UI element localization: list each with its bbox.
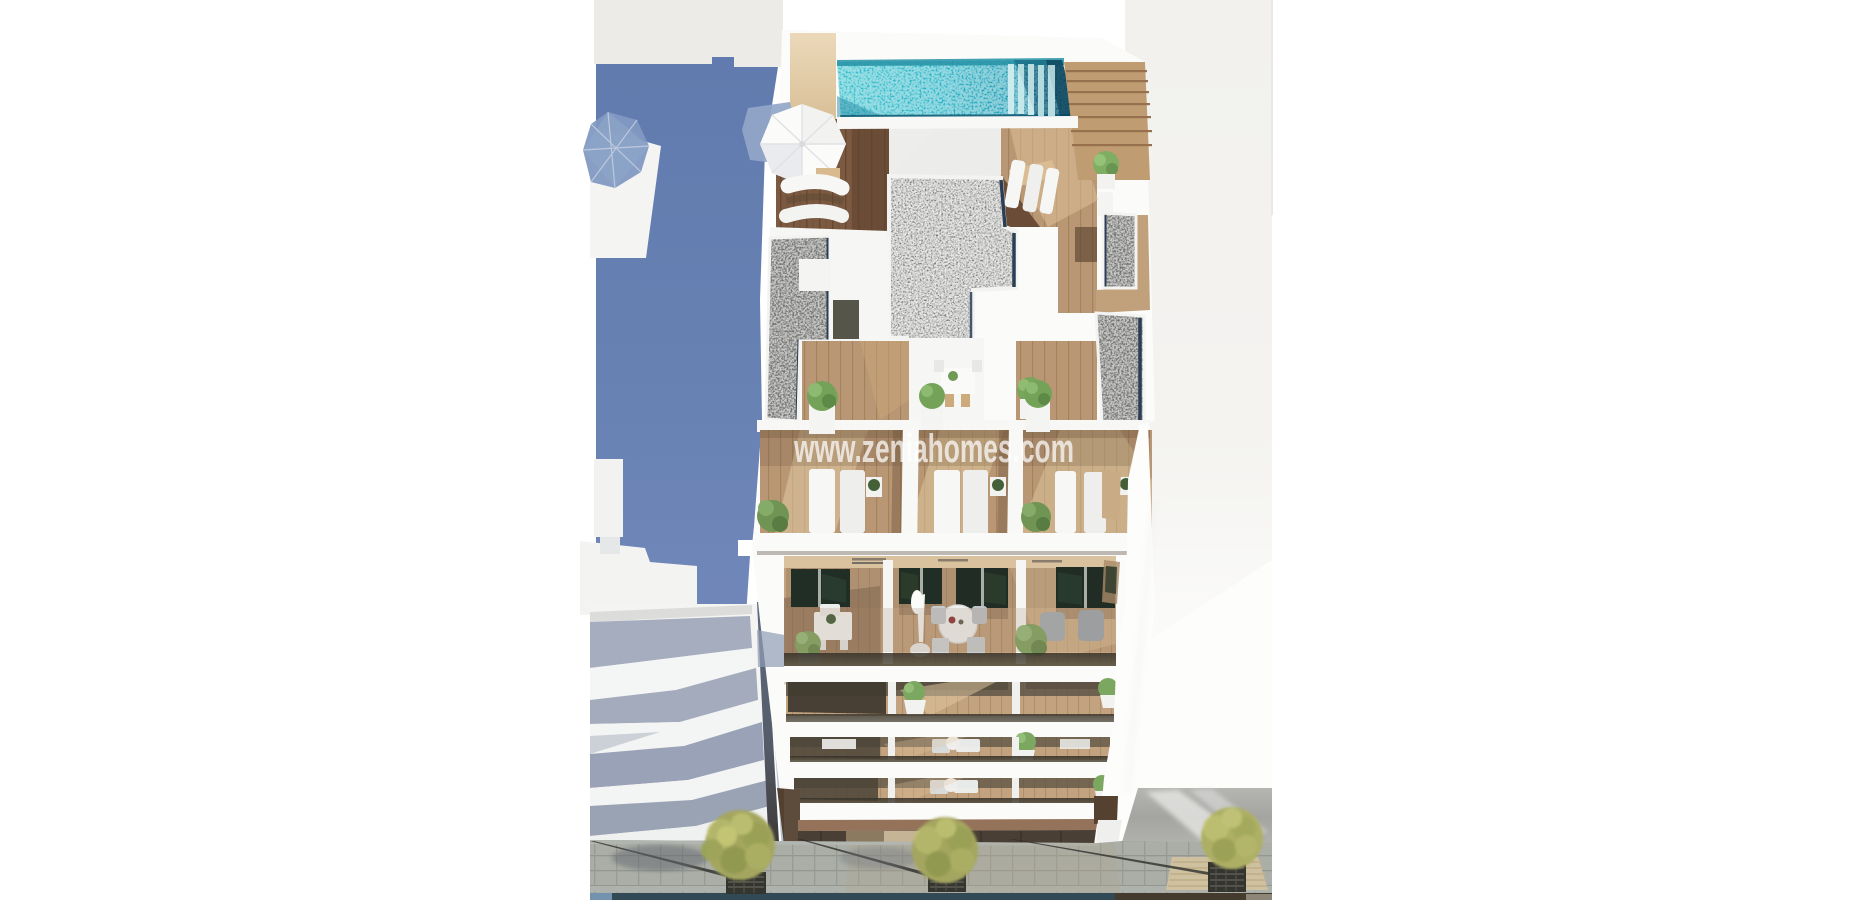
svg-text:www.zeniahomes.com: www.zeniahomes.com — [793, 427, 1074, 471]
